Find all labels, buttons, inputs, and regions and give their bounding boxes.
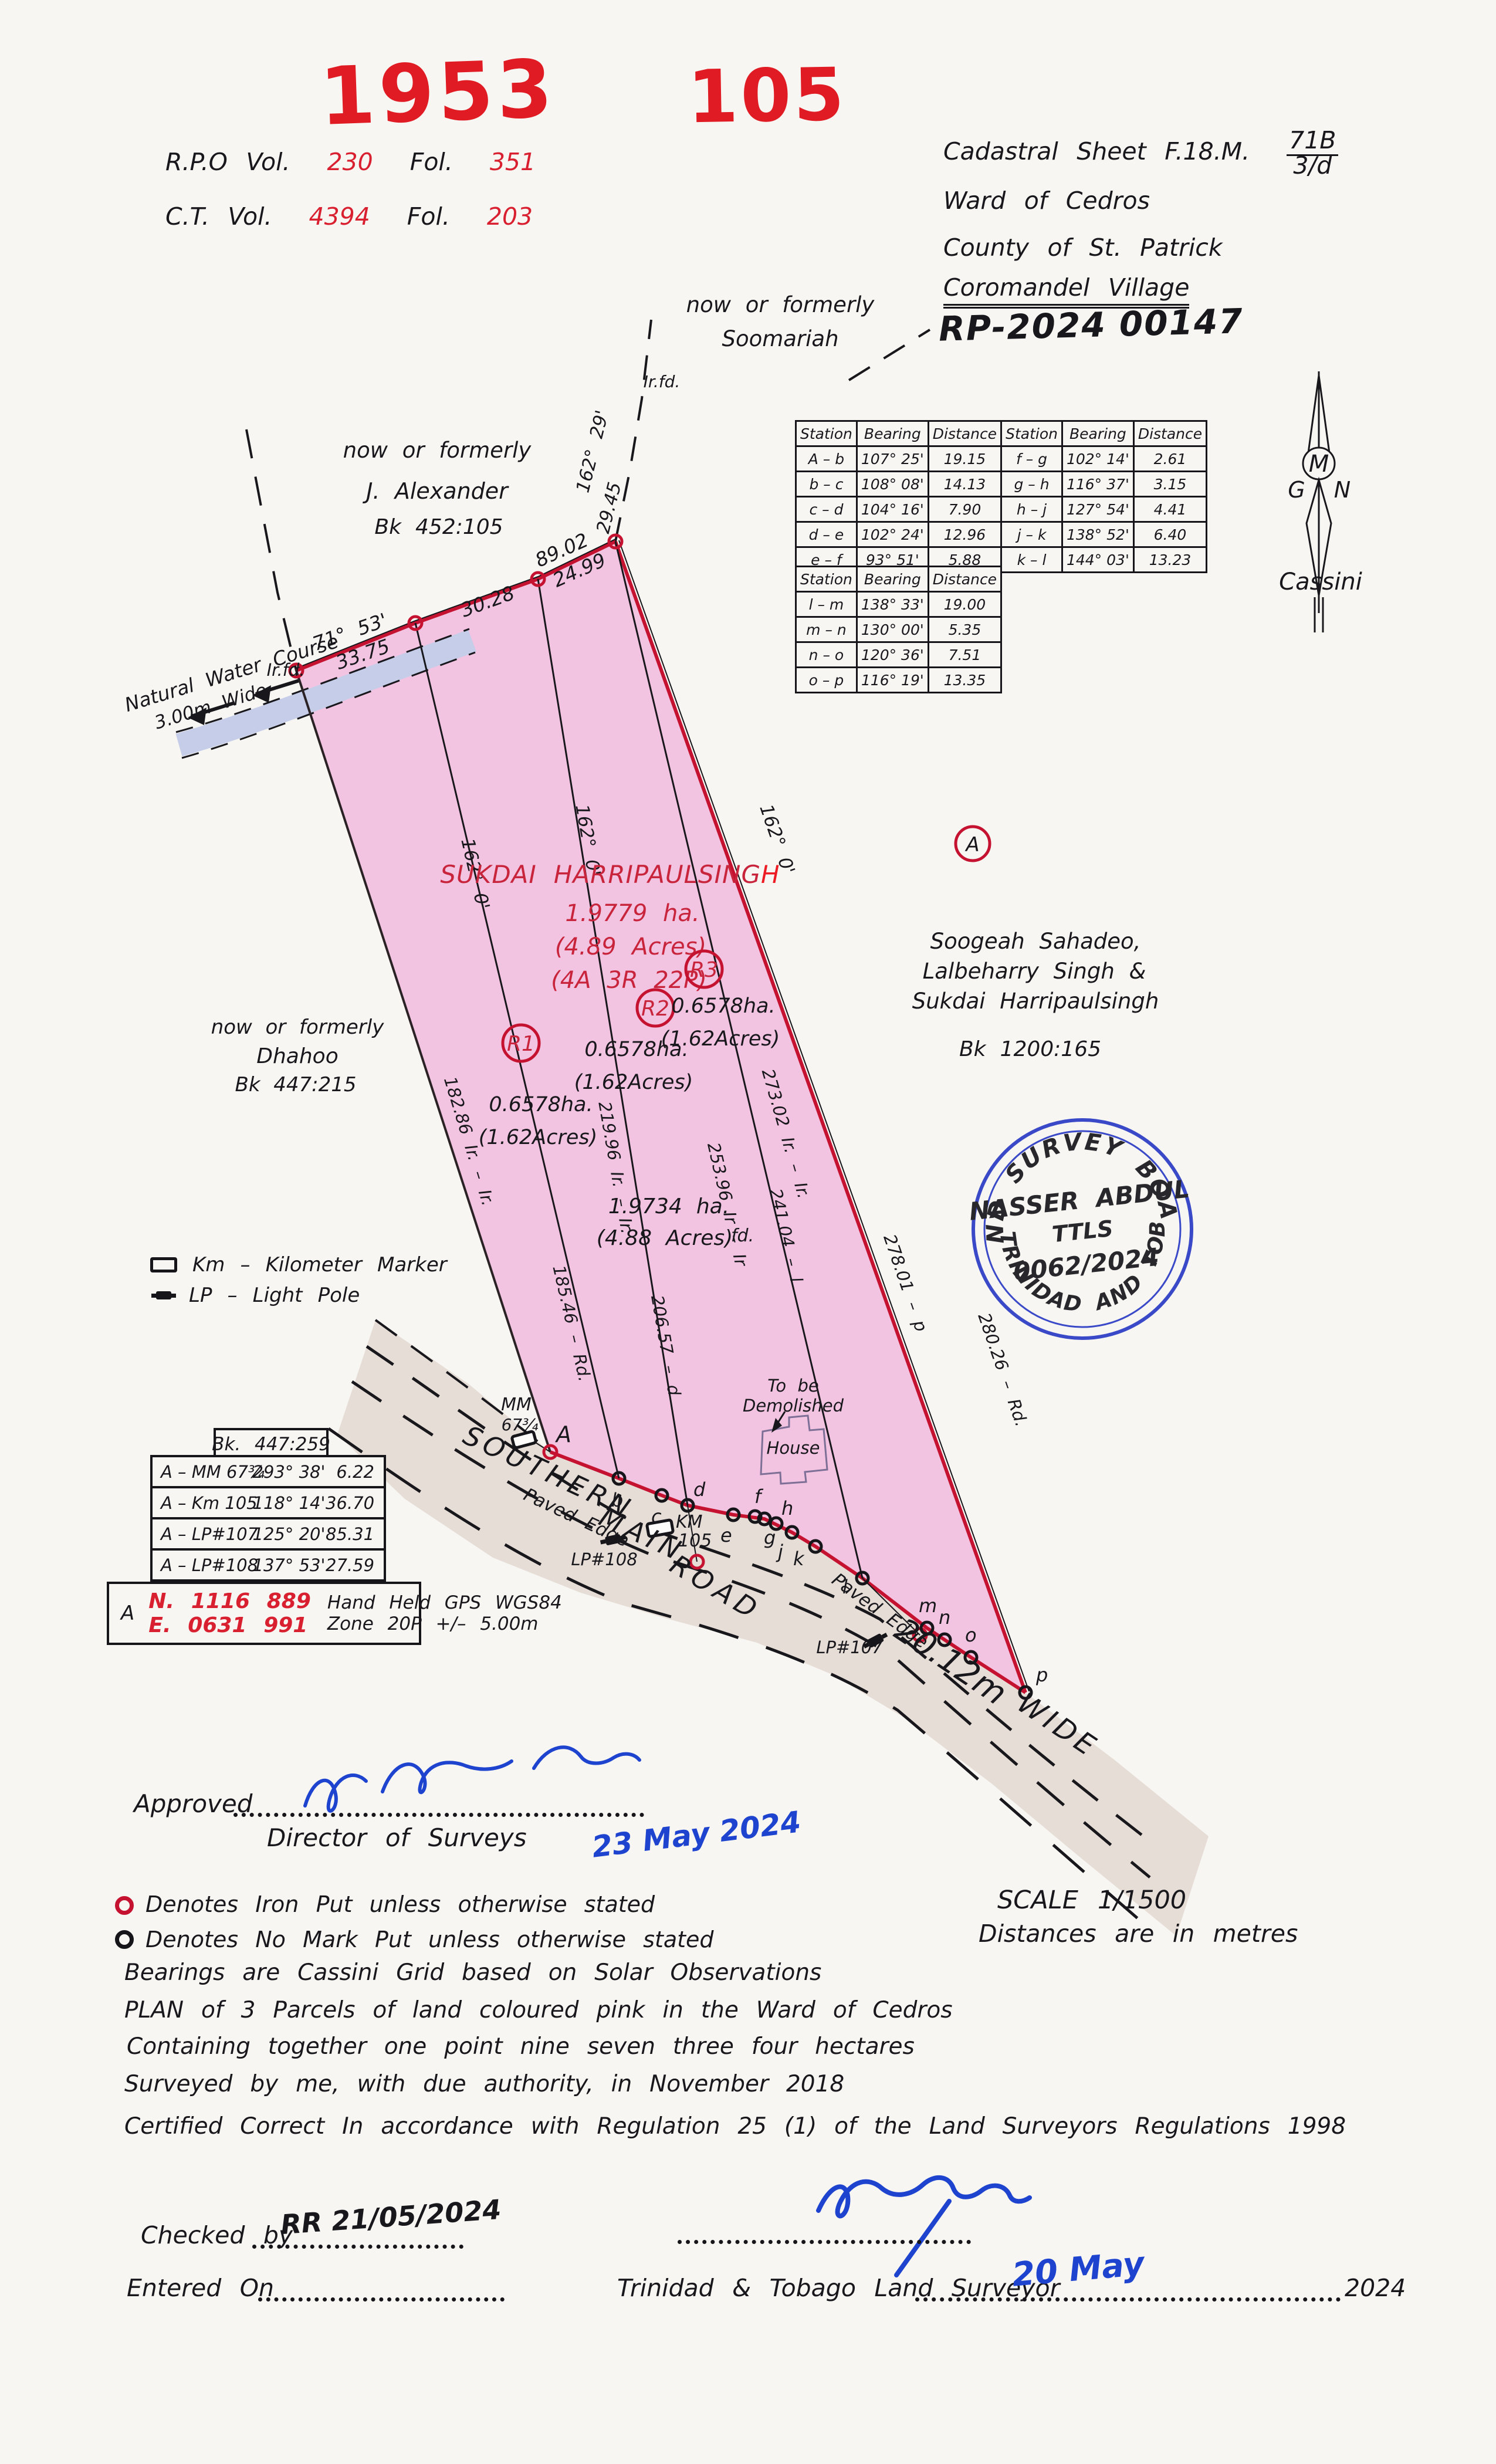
table-row: b – c108° 08'14.13 g – h116° 37'3.15 [796, 472, 1207, 497]
rpo-vol: 230 [327, 148, 373, 176]
table-row: A – LP#107125° 20'85.31 [150, 1517, 386, 1551]
ct-reference: C.T. Vol. 4394 Fol. 203 [165, 202, 533, 231]
r1-area-ha: 0.6578ha. [489, 1093, 593, 1116]
dhahoo-line1: now or formerly [211, 1016, 385, 1039]
table-row: n – o120° 36'7.51 [796, 642, 1001, 668]
col-distance: Distance [928, 421, 1001, 446]
bearing-table-2: Station Bearing Distance l – m138° 33'19… [795, 566, 1002, 693]
ct-fol-label: Fol. [407, 202, 450, 231]
point-label-o: o [965, 1624, 977, 1646]
county-line: County of St. Patrick [943, 233, 1223, 262]
northeast-boundary-dashed [615, 320, 651, 541]
gps-desc-2: Zone 20P +/– 5.00m [327, 1613, 562, 1634]
director-of-surveys-label: Director of Surveys [267, 1823, 527, 1852]
point-label-p: p [1035, 1664, 1048, 1686]
parcel-total-ac: (4.88 Acres) [597, 1226, 733, 1250]
approved-dotted-line [233, 1789, 644, 1817]
r1-area-ac: (1.62Acres) [479, 1126, 598, 1149]
r3-badge-label: R3 [690, 958, 718, 982]
point-label-A: A [554, 1421, 571, 1447]
r3-area-ac: (1.62Acres) [661, 1027, 780, 1051]
rpo-fol: 351 [490, 148, 536, 176]
north-arrow-cassini: Cassini [1279, 568, 1362, 595]
note-bearings: Bearings are Cassini Grid based on Solar… [124, 1959, 821, 1986]
legend: Km – Kilometer Marker LP – Light Pole [150, 1251, 447, 1309]
table-row: A – LP#108137° 53'27.59 [150, 1548, 386, 1582]
alexander-line3: Bk 452:105 [374, 515, 503, 539]
table-row: A – Km 105118° 14'36.70 [150, 1486, 386, 1519]
soomariah-line2: Soomariah [722, 326, 838, 351]
sheet-number-stamp: 105 [687, 53, 847, 140]
rp-number: RP-2024 00147 [938, 301, 1244, 349]
ward-line: Ward of Cedros [943, 187, 1150, 215]
irfd-label: Ir.fd. [267, 660, 305, 680]
point-label-n: n [939, 1606, 950, 1629]
fd-label: fd. [731, 1226, 754, 1246]
north-arrow-m: M [1309, 451, 1329, 478]
cadastral-sheet-line: Cadastral Sheet F.18.M. 71B 3/d [943, 128, 1338, 178]
iron-put-symbol [115, 1896, 134, 1915]
surveyor-signature-line [678, 2216, 971, 2244]
note-plan: PLAN of 3 Parcels of land coloured pink … [124, 1997, 953, 2023]
rpo-reference: R.P.O Vol. 230 Fol. 351 [165, 148, 536, 176]
point-label-d: d [693, 1478, 706, 1501]
gps-box: A N. 1116 889 E. 0631 991 Hand Held GPS … [107, 1582, 421, 1645]
table-row: c – d104° 16'7.90 h – j127° 54'4.41 [796, 497, 1207, 522]
house-label: House [767, 1438, 820, 1458]
col-distance: Distance [928, 567, 1001, 592]
mm-label-2: 67¾ [502, 1415, 539, 1434]
cadastral-sheet-fraction: 71B 3/d [1287, 128, 1338, 178]
point-label-e: e [720, 1524, 732, 1546]
r2-area-ac: (1.62Acres) [574, 1071, 693, 1094]
table-row: d – e102° 24'12.96 j – k138° 52'6.40 [796, 522, 1207, 547]
table-row: o – p116° 19'13.35 [796, 668, 1001, 693]
r3-area-ha: 0.6578ha. [671, 994, 775, 1018]
parcel-owner: SUKDAI HARRIPAULSINGH [440, 860, 780, 889]
km-label-1: KM [676, 1512, 703, 1532]
ct-vol: 4394 [309, 202, 370, 231]
alexander-line2: J. Alexander [362, 478, 509, 504]
house-demo-label-1: To be [767, 1376, 819, 1396]
cadastral-label: Cadastral Sheet F.18.M. [943, 137, 1250, 165]
rpo-label: R.P.O Vol. [165, 148, 290, 176]
soogeah-line3: Sukdai Harripaulsingh [912, 989, 1159, 1014]
soomariah-boundary-dashed [849, 330, 930, 380]
ref-a-label: A [964, 833, 979, 857]
col-bearing: Bearing [857, 421, 928, 446]
col-distance: Distance [1133, 421, 1206, 446]
light-pole-legend-icon [150, 1288, 177, 1302]
lp108-label: LP#108 [571, 1549, 637, 1569]
sheet-bottom: 3/d [1293, 151, 1332, 180]
table-row: A – MM 67¾293° 38'6.22 [150, 1455, 386, 1488]
lp107-label: LP#107 [816, 1637, 883, 1657]
north-arrow-n: N [1334, 477, 1351, 503]
alexander-boundary-dashed [246, 429, 296, 671]
gps-easting: E. 0631 991 [148, 1613, 311, 1637]
ct-label: C.T. Vol. [165, 202, 272, 231]
point-label-h: h [781, 1497, 793, 1519]
entered-dotted-line [258, 2274, 505, 2301]
distances-label: Distances are in metres [979, 1920, 1298, 1948]
point-label-k: k [793, 1548, 805, 1570]
point-label-g: g [764, 1527, 776, 1549]
seal-title: TTLS [1051, 1216, 1114, 1248]
len-28026: 280.26 – Rd. [974, 1310, 1031, 1429]
soogeah-line2: Lalbeharry Singh & [923, 959, 1146, 984]
col-station: Station [1001, 421, 1062, 446]
parcel-total-ha: 1.9734 ha. [608, 1194, 729, 1219]
r2-badge-label: R2 [641, 997, 669, 1021]
table-row: l – m138° 33'19.00 [796, 592, 1001, 617]
dist-2945: 29.45 [593, 480, 625, 536]
point-label-m: m [919, 1595, 937, 1617]
col-bearing: Bearing [1062, 421, 1133, 446]
gps-desc-1: Hand Held GPS WGS84 [327, 1592, 562, 1613]
no-mark-symbol [115, 1930, 134, 1949]
footer-year: 2024 [1345, 2274, 1406, 2302]
parcel-area-acres: (4.89 Acres) [555, 933, 706, 960]
r1-badge-label: R1 [507, 1032, 535, 1056]
gps-point: A [121, 1602, 134, 1625]
north-arrow-g: G [1288, 477, 1305, 503]
table-row: m – n130° 00'5.35 [796, 617, 1001, 642]
surveyor-signature [818, 2178, 1030, 2216]
dhahoo-line2: Dhahoo [256, 1044, 338, 1068]
year-stamp: 1953 [318, 43, 557, 144]
soogeah-line4: Bk 1200:165 [959, 1037, 1101, 1061]
parcel-area-ha: 1.9779 ha. [565, 900, 699, 927]
ct-fol: 203 [487, 202, 533, 231]
scale-label: SCALE 1/1500 [997, 1886, 1186, 1915]
house-demo-label-2: Demolished [743, 1396, 844, 1416]
rpo-fol-label: Fol. [410, 148, 453, 176]
entered-on-label: Entered On [127, 2274, 274, 2302]
note-containing: Containing together one point nine seven… [127, 2033, 915, 2060]
note-surveyed: Surveyed by me, with due authority, in N… [124, 2071, 844, 2097]
parcel-area-arp: (4A 3R 22P) [551, 967, 707, 994]
note-iron: Denotes Iron Put unless otherwise stated [145, 1891, 655, 1917]
dhahoo-line3: Bk 447:215 [235, 1073, 357, 1096]
table-row: A – b107° 25'19.15 f – g102° 14'2.61 [796, 446, 1207, 472]
legend-lp-label: LP – Light Pole [189, 1284, 360, 1307]
alexander-line1: now or formerly [343, 438, 532, 463]
irfd2-label: Ir.fd. [644, 372, 681, 391]
legend-km-label: Km – Kilometer Marker [192, 1253, 447, 1277]
col-station: Station [796, 567, 857, 592]
mm-label-1: MM [501, 1395, 532, 1415]
km-label-2: 105 [678, 1531, 712, 1551]
col-bearing: Bearing [857, 567, 928, 592]
soomariah-line1: now or formerly [686, 292, 875, 317]
tie-table: A – MM 67¾293° 38'6.22 A – Km 105118° 14… [150, 1457, 386, 1582]
gps-northing: N. 1116 889 [148, 1589, 311, 1613]
bearing-table-1: Station Bearing Distance Station Bearing… [795, 420, 1207, 573]
km-marker-legend-icon [150, 1257, 177, 1272]
note-certified: Certified Correct In accordance with Reg… [124, 2113, 1346, 2140]
note-nomark: Denotes No Mark Put unless otherwise sta… [145, 1927, 714, 1952]
col-station: Station [796, 421, 857, 446]
soogeah-line1: Soogeah Sahadeo, [930, 929, 1141, 954]
